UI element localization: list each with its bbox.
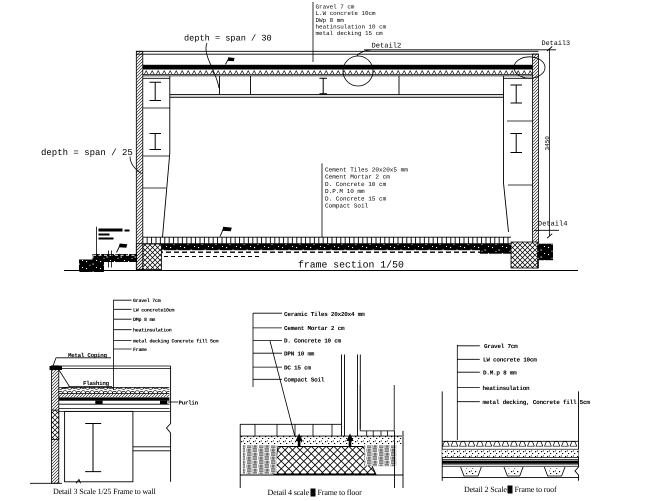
svg-text:metal decking, Concrete fill 5: metal decking, Concrete fill 5cm	[483, 399, 591, 406]
svg-text:heatinsulation: heatinsulation	[483, 385, 531, 392]
svg-text:depth = span / 30: depth = span / 30	[184, 33, 272, 43]
svg-text:D. Concrete 10 cm: D. Concrete 10 cm	[325, 181, 387, 188]
svg-text:frame section 1/50: frame section 1/50	[298, 260, 404, 271]
svg-text:Flashing: Flashing	[83, 380, 110, 387]
svg-text:Detail 4 scale: Detail 4 scale	[268, 488, 310, 497]
svg-text:Compact Soil: Compact Soil	[284, 377, 325, 384]
svg-text:heatinsulation: heatinsulation	[133, 328, 172, 334]
svg-text:3450: 3450	[544, 136, 551, 151]
svg-text:metal decking Concrete fill 5c: metal decking Concrete fill 5cm	[133, 339, 219, 345]
svg-text:DC 15 cm: DC 15 cm	[284, 364, 311, 371]
svg-text:Detail 2 Scale: Detail 2 Scale	[464, 485, 507, 494]
svg-text:D. Concrete 10 cm: D. Concrete 10 cm	[284, 338, 342, 345]
svg-text:Detail2: Detail2	[372, 41, 402, 50]
svg-text:Purlin: Purlin	[179, 399, 199, 406]
svg-text:Frame: Frame	[133, 347, 147, 353]
svg-text:Detail4: Detail4	[538, 220, 567, 229]
svg-text:Ceramic Tiles 20x20x4 mm: Ceramic Tiles 20x20x4 mm	[284, 311, 365, 318]
svg-text:Detail 3 Scale 1/25 Frame to w: Detail 3 Scale 1/25 Frame to wall	[53, 487, 157, 496]
svg-text:Compact Soil: Compact Soil	[325, 203, 369, 210]
svg-text:Cement Mortar 2 cm: Cement Mortar 2 cm	[325, 174, 390, 181]
svg-text:D. Concrete 15 cm: D. Concrete 15 cm	[325, 195, 387, 202]
svg-text:Gravel 7cm: Gravel 7cm	[133, 298, 161, 304]
svg-text:Cement Mortar 2 cm: Cement Mortar 2 cm	[284, 325, 345, 332]
svg-text:D.P.M 10 mm: D.P.M 10 mm	[325, 188, 365, 195]
svg-text:DPN 10 mm: DPN 10 mm	[284, 350, 315, 357]
svg-text:depth = span / 25: depth = span / 25	[41, 148, 133, 158]
svg-text:metal decking 15 cm: metal decking 15 cm	[316, 30, 384, 37]
svg-text:Frame to roof: Frame to roof	[515, 485, 558, 494]
svg-text:Gravel 7cm: Gravel 7cm	[484, 343, 518, 350]
svg-text:Cement Tiles 20x20x5 mm: Cement Tiles 20x20x5 mm	[325, 167, 408, 174]
svg-text:LW concrete10cm: LW concrete10cm	[133, 307, 175, 313]
svg-text:Frame to floor: Frame to floor	[318, 488, 363, 497]
svg-text:LW concrete 10cm: LW concrete 10cm	[483, 357, 537, 364]
svg-text:D.M.p 8 mm: D.M.p 8 mm	[483, 369, 517, 376]
svg-text:DMp 8 mm: DMp 8 mm	[133, 317, 155, 323]
svg-text:Detail3: Detail3	[542, 40, 571, 48]
